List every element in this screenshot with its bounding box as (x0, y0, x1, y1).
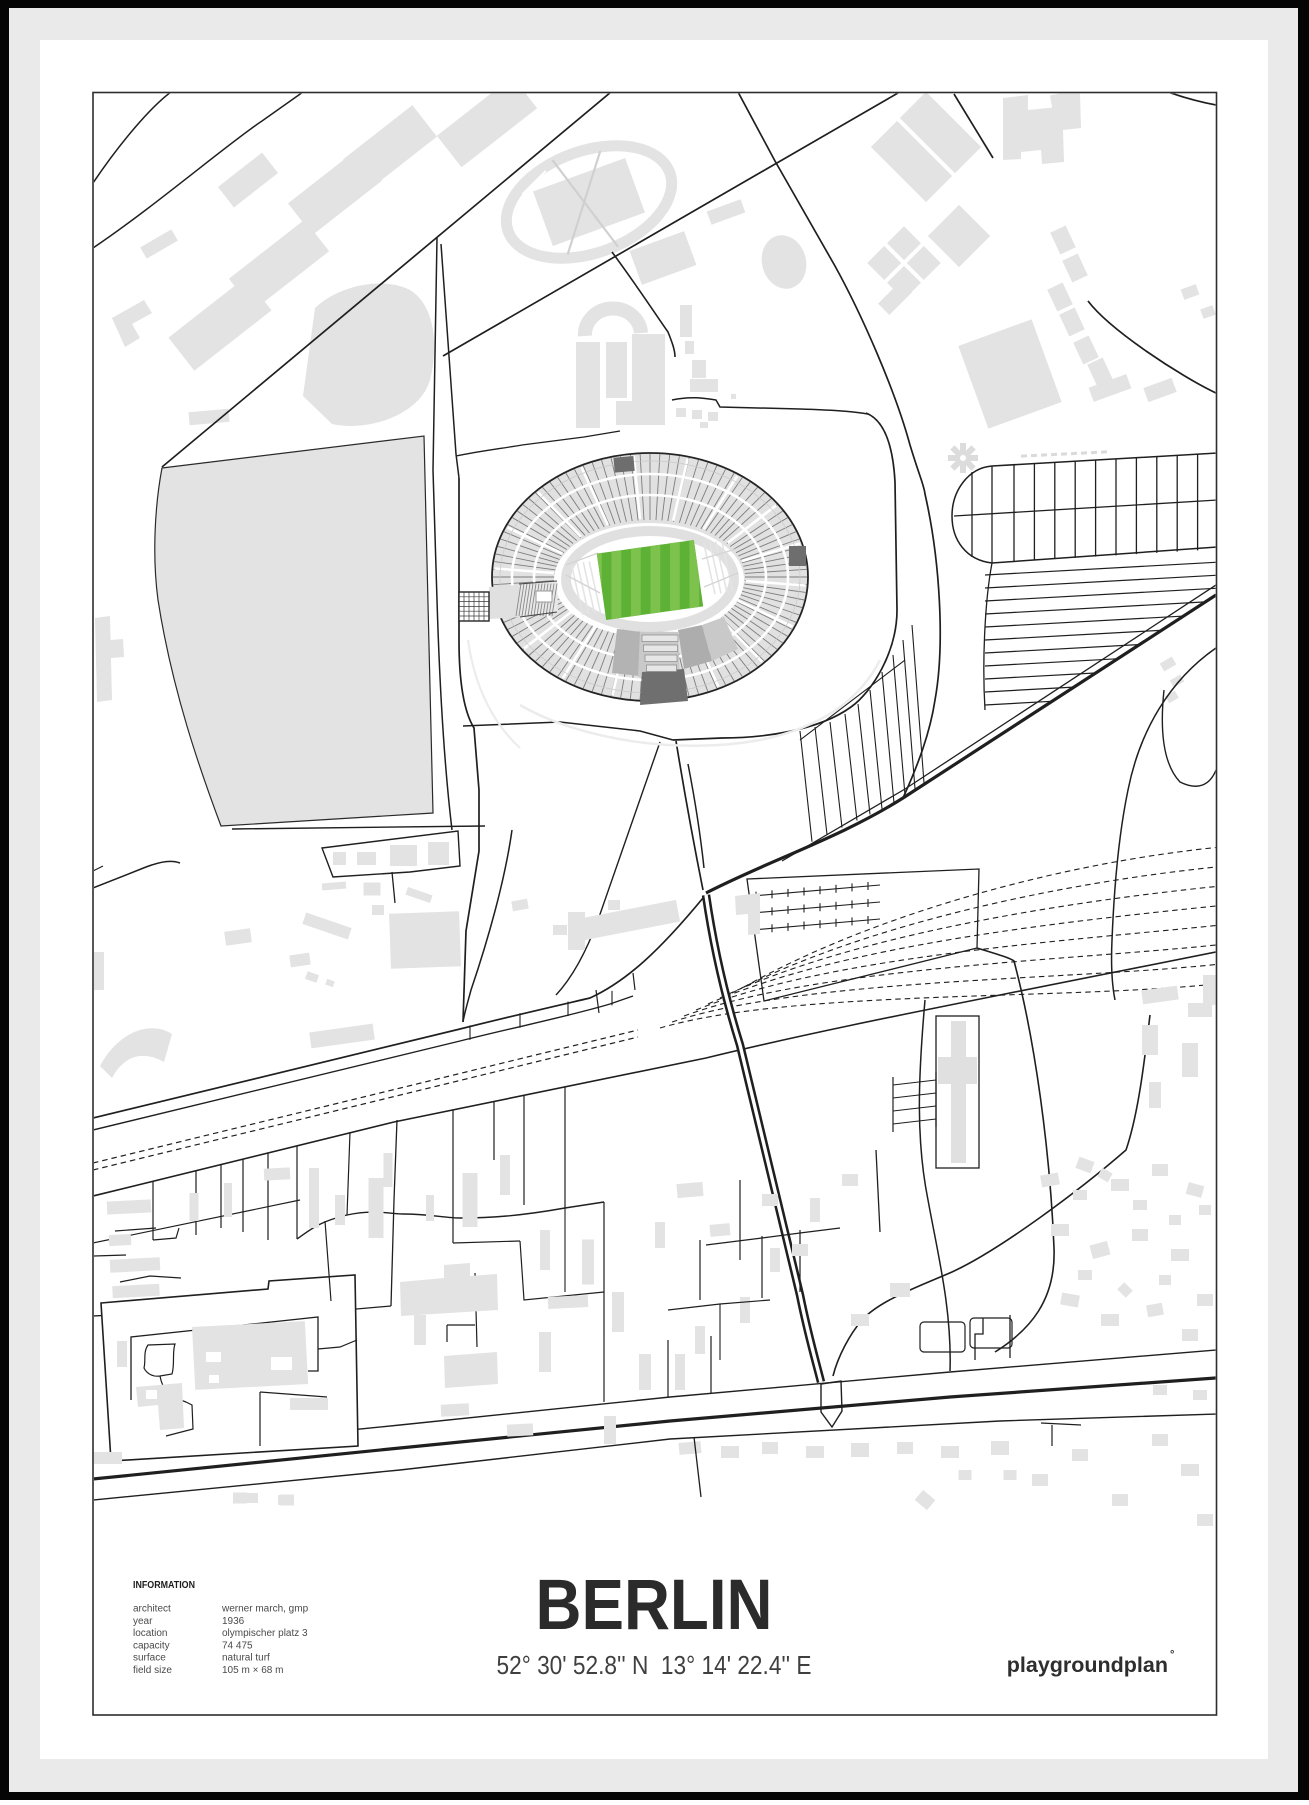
svg-text:field size: field size (133, 1665, 172, 1676)
svg-text:105 m × 68 m: 105 m × 68 m (222, 1665, 283, 1676)
svg-text:playgroundplan: playgroundplan (1007, 1653, 1168, 1677)
svg-text:natural turf: natural turf (222, 1653, 270, 1664)
svg-text:°: ° (1170, 1649, 1174, 1661)
svg-text:BERLIN: BERLIN (536, 1566, 773, 1645)
svg-text:INFORMATION: INFORMATION (133, 1579, 195, 1591)
svg-text:surface: surface (133, 1653, 166, 1664)
svg-text:1936: 1936 (222, 1616, 245, 1627)
svg-text:year: year (133, 1616, 153, 1627)
svg-text:werner march, gmp: werner march, gmp (221, 1604, 309, 1615)
svg-text:capacity: capacity (133, 1640, 170, 1651)
svg-text:architect: architect (133, 1604, 171, 1615)
svg-text:olympischer platz 3: olympischer platz 3 (222, 1628, 308, 1639)
svg-text:52° 30' 52.8'' N 13° 14' 22.4: 52° 30' 52.8'' N 13° 14' 22.4'' E (497, 1650, 812, 1680)
svg-text:74 475: 74 475 (222, 1640, 253, 1651)
svg-text:location: location (133, 1628, 167, 1639)
